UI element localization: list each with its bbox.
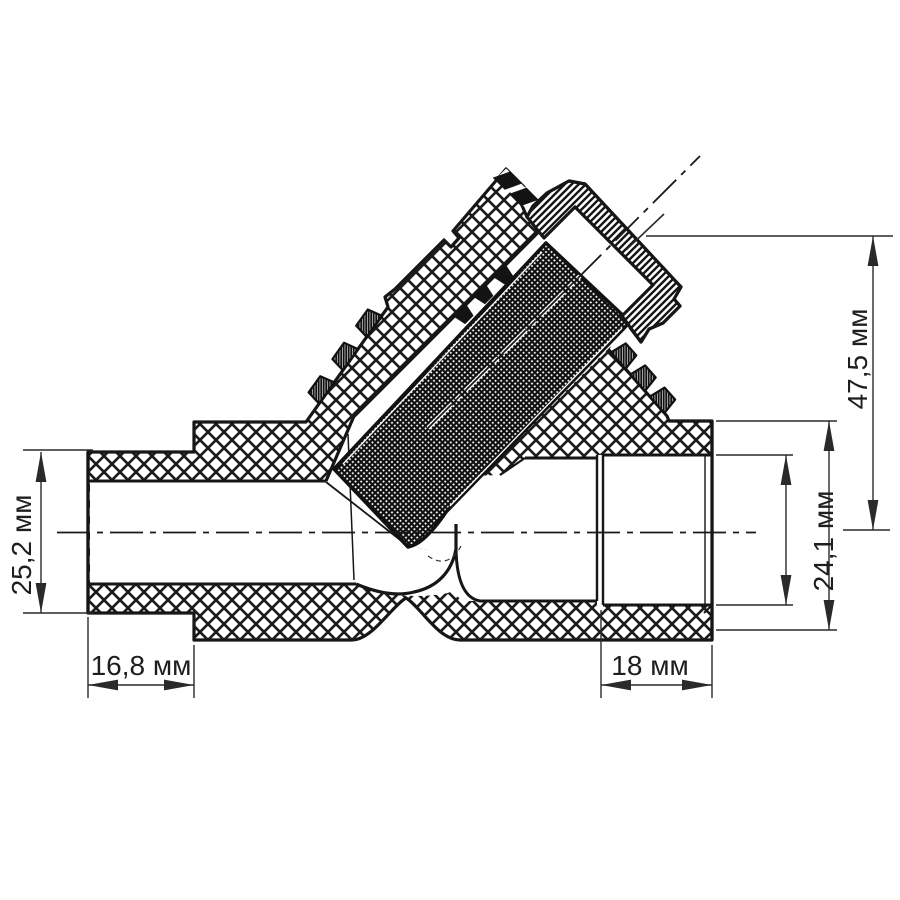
svg-text:24,1 мм: 24,1 мм [808, 491, 839, 592]
svg-text:25,2 мм: 25,2 мм [6, 495, 37, 596]
svg-text:18 мм: 18 мм [611, 650, 688, 681]
svg-text:47,5 мм: 47,5 мм [842, 309, 873, 410]
svg-text:16,8 мм: 16,8 мм [91, 650, 192, 681]
